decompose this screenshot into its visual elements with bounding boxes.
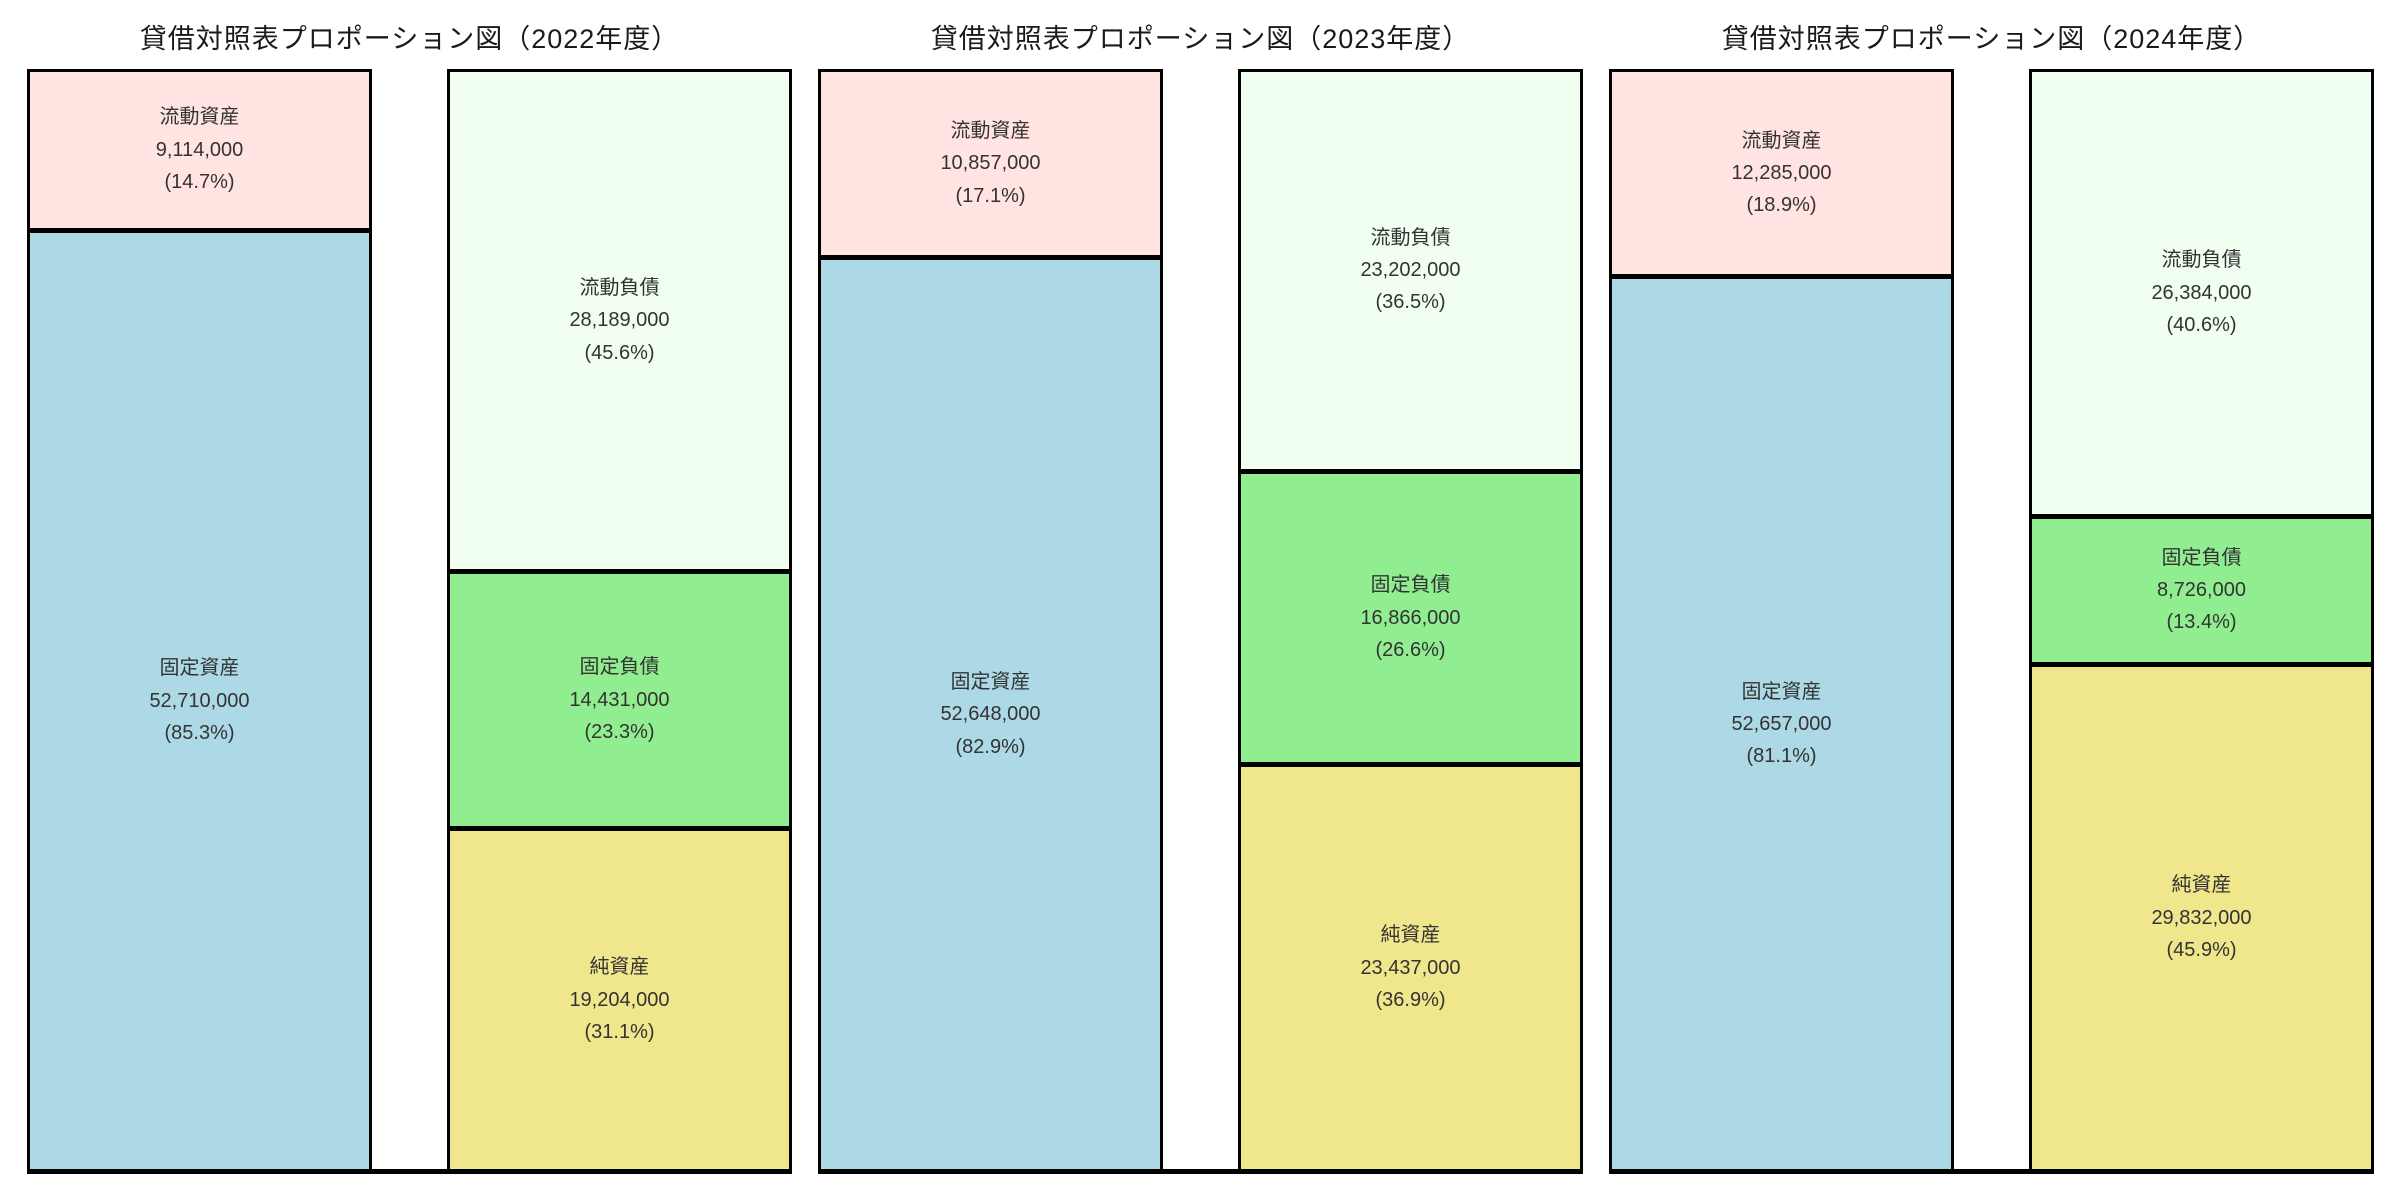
- segment-net-assets: 純資産23,437,000(36.9%): [1238, 765, 1583, 1172]
- seg-label: 純資産: [2172, 869, 2232, 901]
- chart-title: 貸借対照表プロポーション図（2024年度）: [1609, 17, 2374, 56]
- axes-2024: 流動資産12,285,000(18.9%)固定資産52,657,000(81.1…: [1609, 69, 2374, 1172]
- assets-column: 流動資産10,857,000(17.1%)固定資産52,648,000(82.9…: [818, 69, 1163, 1172]
- seg-value: 28,189,000: [569, 304, 669, 336]
- liabilities-equity-column: 流動負債26,384,000(40.6%)固定負債8,726,000(13.4%…: [2029, 69, 2374, 1172]
- seg-percent: (85.3%): [164, 717, 234, 749]
- seg-percent: (13.4%): [2166, 606, 2236, 638]
- seg-value: 52,648,000: [940, 698, 1040, 730]
- seg-percent: (17.1%): [955, 180, 1025, 212]
- seg-label: 固定負債: [2162, 542, 2242, 574]
- seg-percent: (40.6%): [2166, 309, 2236, 341]
- seg-value: 23,202,000: [1360, 254, 1460, 286]
- seg-label: 流動負債: [580, 272, 660, 304]
- seg-value: 10,857,000: [940, 147, 1040, 179]
- segment-net-assets: 純資産29,832,000(45.9%): [2029, 665, 2374, 1172]
- assets-column: 流動資産9,114,000(14.7%)固定資産52,710,000(85.3%…: [27, 69, 372, 1172]
- segment-current-liabilities: 流動負債26,384,000(40.6%): [2029, 69, 2374, 517]
- seg-percent: (45.6%): [584, 337, 654, 369]
- segment-current-assets: 流動資産12,285,000(18.9%): [1609, 69, 1954, 277]
- seg-percent: (26.6%): [1375, 634, 1445, 666]
- seg-value: 12,285,000: [1731, 157, 1831, 189]
- x-axis-baseline: [27, 1169, 792, 1174]
- seg-label: 流動負債: [2162, 244, 2242, 276]
- segment-fixed-assets: 固定資産52,648,000(82.9%): [818, 258, 1163, 1172]
- seg-percent: (18.9%): [1746, 189, 1816, 221]
- seg-percent: (82.9%): [955, 731, 1025, 763]
- seg-percent: (45.9%): [2166, 934, 2236, 966]
- seg-value: 29,832,000: [2151, 902, 2251, 934]
- chart-title: 貸借対照表プロポーション図（2022年度）: [27, 17, 792, 56]
- segment-net-assets: 純資産19,204,000(31.1%): [447, 829, 792, 1172]
- seg-label: 固定負債: [1371, 569, 1451, 601]
- segment-current-assets: 流動資産9,114,000(14.7%): [27, 69, 372, 231]
- seg-percent: (31.1%): [584, 1016, 654, 1048]
- seg-label: 純資産: [590, 951, 650, 983]
- seg-label: 固定資産: [160, 652, 240, 684]
- seg-label: 流動資産: [951, 115, 1031, 147]
- seg-value: 9,114,000: [156, 134, 244, 166]
- axes-2022: 流動資産9,114,000(14.7%)固定資産52,710,000(85.3%…: [27, 69, 792, 1172]
- seg-value: 52,657,000: [1731, 708, 1831, 740]
- segment-current-assets: 流動資産10,857,000(17.1%): [818, 69, 1163, 258]
- seg-value: 14,431,000: [569, 684, 669, 716]
- seg-label: 固定資産: [1742, 676, 1822, 708]
- seg-percent: (23.3%): [584, 716, 654, 748]
- axes-2023: 流動資産10,857,000(17.1%)固定資産52,648,000(82.9…: [818, 69, 1583, 1172]
- segment-fixed-assets: 固定資産52,710,000(85.3%): [27, 231, 372, 1172]
- seg-value: 52,710,000: [149, 685, 249, 717]
- chart-group-2022: 貸借対照表プロポーション図（2022年度） 流動資産9,114,000(14.7…: [27, 0, 792, 1200]
- seg-value: 19,204,000: [569, 984, 669, 1016]
- seg-label: 流動資産: [1742, 125, 1822, 157]
- seg-label: 純資産: [1381, 919, 1441, 951]
- chart-title: 貸借対照表プロポーション図（2023年度）: [818, 17, 1583, 56]
- seg-value: 16,866,000: [1360, 602, 1460, 634]
- seg-label: 固定資産: [951, 666, 1031, 698]
- segment-fixed-assets: 固定資産52,657,000(81.1%): [1609, 277, 1954, 1172]
- seg-percent: (81.1%): [1746, 740, 1816, 772]
- assets-column: 流動資産12,285,000(18.9%)固定資産52,657,000(81.1…: [1609, 69, 1954, 1172]
- seg-percent: (36.5%): [1375, 286, 1445, 318]
- segment-fixed-liabilities: 固定負債14,431,000(23.3%): [447, 572, 792, 829]
- chart-group-2024: 貸借対照表プロポーション図（2024年度） 流動資産12,285,000(18.…: [1609, 0, 2374, 1200]
- segment-fixed-liabilities: 固定負債16,866,000(26.6%): [1238, 472, 1583, 765]
- x-axis-baseline: [1609, 1169, 2374, 1174]
- seg-label: 流動負債: [1371, 222, 1451, 254]
- balance-sheet-proportion-figure: 貸借対照表プロポーション図（2022年度） 流動資産9,114,000(14.7…: [0, 0, 2400, 1200]
- seg-percent: (36.9%): [1375, 984, 1445, 1016]
- seg-percent: (14.7%): [164, 166, 234, 198]
- segment-current-liabilities: 流動負債28,189,000(45.6%): [447, 69, 792, 572]
- liabilities-equity-column: 流動負債28,189,000(45.6%)固定負債14,431,000(23.3…: [447, 69, 792, 1172]
- seg-label: 流動資産: [160, 101, 240, 133]
- x-axis-baseline: [818, 1169, 1583, 1174]
- segment-fixed-liabilities: 固定負債8,726,000(13.4%): [2029, 517, 2374, 665]
- segment-current-liabilities: 流動負債23,202,000(36.5%): [1238, 69, 1583, 472]
- seg-value: 8,726,000: [2157, 574, 2246, 606]
- seg-value: 26,384,000: [2151, 277, 2251, 309]
- seg-value: 23,437,000: [1360, 952, 1460, 984]
- chart-group-2023: 貸借対照表プロポーション図（2023年度） 流動資産10,857,000(17.…: [818, 0, 1583, 1200]
- liabilities-equity-column: 流動負債23,202,000(36.5%)固定負債16,866,000(26.6…: [1238, 69, 1583, 1172]
- seg-label: 固定負債: [580, 651, 660, 683]
